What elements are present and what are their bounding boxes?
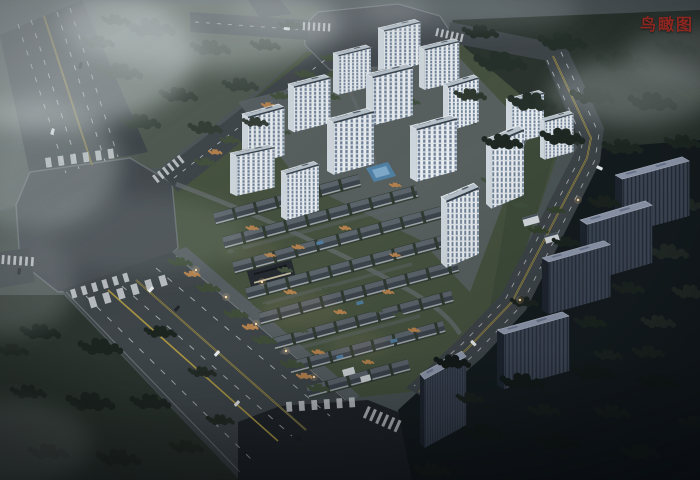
birdseye-view-label: 鸟瞰图 [640,11,694,35]
vignette [0,0,700,480]
aerial-rendering-canvas: 鸟瞰图 [0,0,700,480]
aerial-rendering [0,0,700,480]
